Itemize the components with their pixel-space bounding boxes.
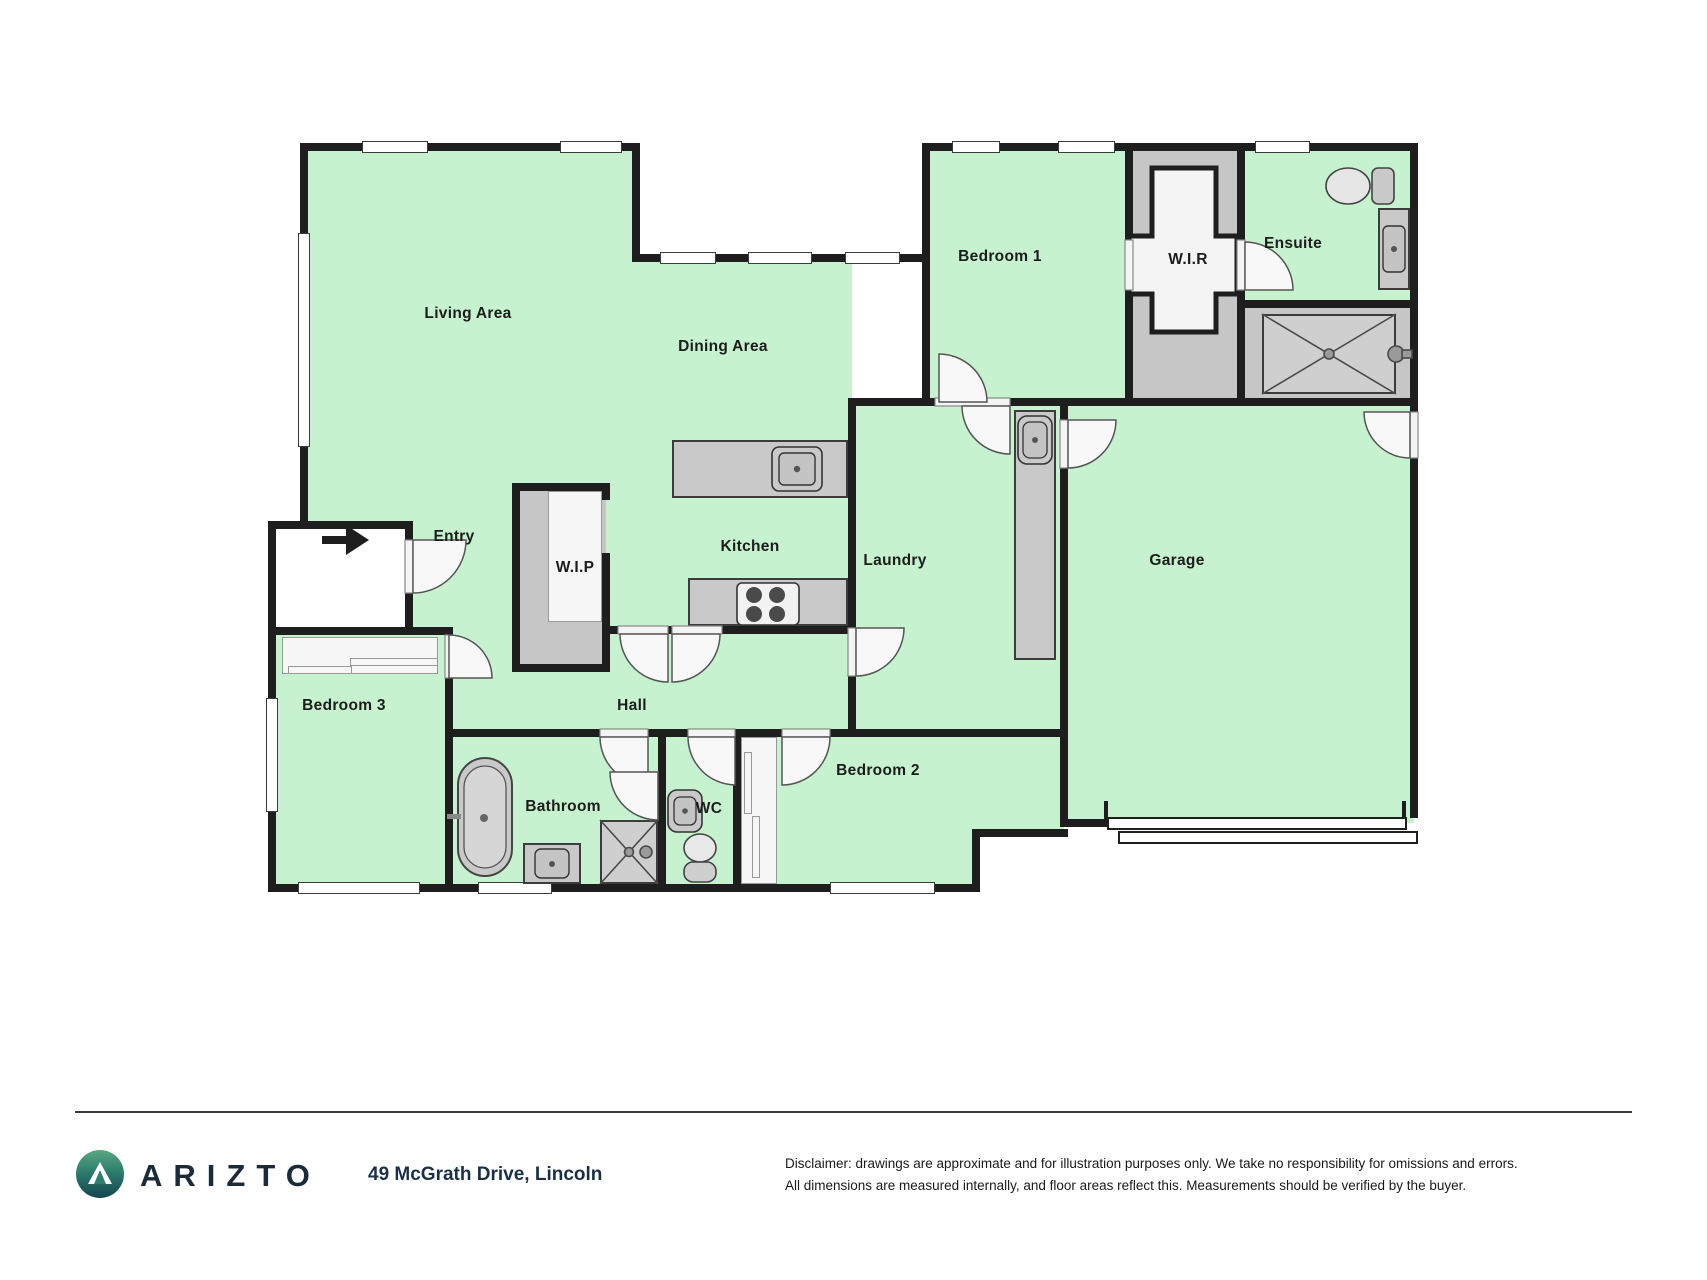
entry-arrow-icon [322, 525, 369, 555]
room-label-kitchen: Kitchen [721, 538, 780, 556]
door-leaf [1410, 412, 1418, 458]
room-label-garage: Garage [1149, 552, 1204, 570]
door-leaf [848, 628, 856, 676]
door-leaf [672, 626, 722, 634]
disclaimer-line-2: All dimensions are measured internally, … [785, 1175, 1518, 1197]
door-leaf [600, 729, 648, 737]
room-label-ensuite: Ensuite [1264, 235, 1322, 253]
room-label-wir: W.I.R [1168, 251, 1207, 269]
room-label-bathroom: Bathroom [525, 798, 601, 816]
door-arc-wc [688, 737, 735, 785]
door-leaf [1060, 420, 1068, 468]
ensuite-toilet-icon [1326, 168, 1394, 204]
door-leaf [1237, 240, 1245, 290]
stove-icon [737, 583, 799, 625]
disclaimer-line-1: Disclaimer: drawings are approximate and… [785, 1153, 1518, 1175]
door-arc-entry [413, 540, 466, 593]
door-arc-bedroom3 [449, 635, 492, 678]
room-label-hall: Hall [617, 697, 647, 715]
door-leaf [1125, 240, 1133, 290]
door-arc-hall-right [672, 634, 720, 682]
bathtub-icon [447, 758, 512, 876]
arizto-logo [76, 1150, 124, 1198]
kitchen-sink-icon [772, 447, 822, 491]
laundry-sink-icon [1018, 416, 1052, 464]
bathroom-sink-icon [535, 849, 569, 878]
door-leaf [688, 729, 735, 737]
door-arc-hall-left [620, 634, 668, 682]
door-arc-garage-side [1364, 412, 1410, 458]
fixtures-layer [0, 0, 1707, 1280]
door-arc-shower [610, 772, 658, 820]
bathroom-shower-icon [600, 820, 658, 884]
room-label-living: Living Area [424, 305, 511, 323]
mountain-logo-icon [76, 1150, 124, 1198]
room-label-bedroom3: Bedroom 3 [302, 697, 386, 715]
door-arc-laundry [856, 628, 904, 676]
room-label-entry: Entry [433, 528, 474, 546]
disclaimer-text: Disclaimer: drawings are approximate and… [785, 1153, 1518, 1196]
door-arc-lobby [962, 406, 1010, 454]
room-label-wc: WC [696, 800, 722, 818]
door-leaf [782, 729, 830, 737]
footer-divider [75, 1111, 1632, 1113]
door-leaf [405, 540, 413, 593]
door-arc-bedroom2 [782, 737, 830, 785]
ensuite-sink-icon [1383, 226, 1405, 272]
door-leaf [618, 626, 668, 634]
door-arc-bedroom1 [939, 354, 987, 402]
ensuite-shower-icon [1262, 314, 1412, 394]
room-label-bedroom2: Bedroom 2 [836, 762, 920, 780]
door-arc-garage-entry [1068, 420, 1116, 468]
room-label-bedroom1: Bedroom 1 [958, 248, 1042, 266]
brand-name: ARIZTO [140, 1158, 321, 1194]
room-label-laundry: Laundry [863, 552, 926, 570]
wc-toilet-icon [684, 834, 716, 882]
floorplan-page: Living Area Dining Area Bedroom 1 W.I.R … [0, 0, 1707, 1280]
room-label-dining: Dining Area [678, 338, 768, 356]
room-label-wip: W.I.P [556, 559, 595, 577]
property-address: 49 McGrath Drive, Lincoln [368, 1164, 602, 1186]
wir-closet-cross [1129, 168, 1237, 332]
